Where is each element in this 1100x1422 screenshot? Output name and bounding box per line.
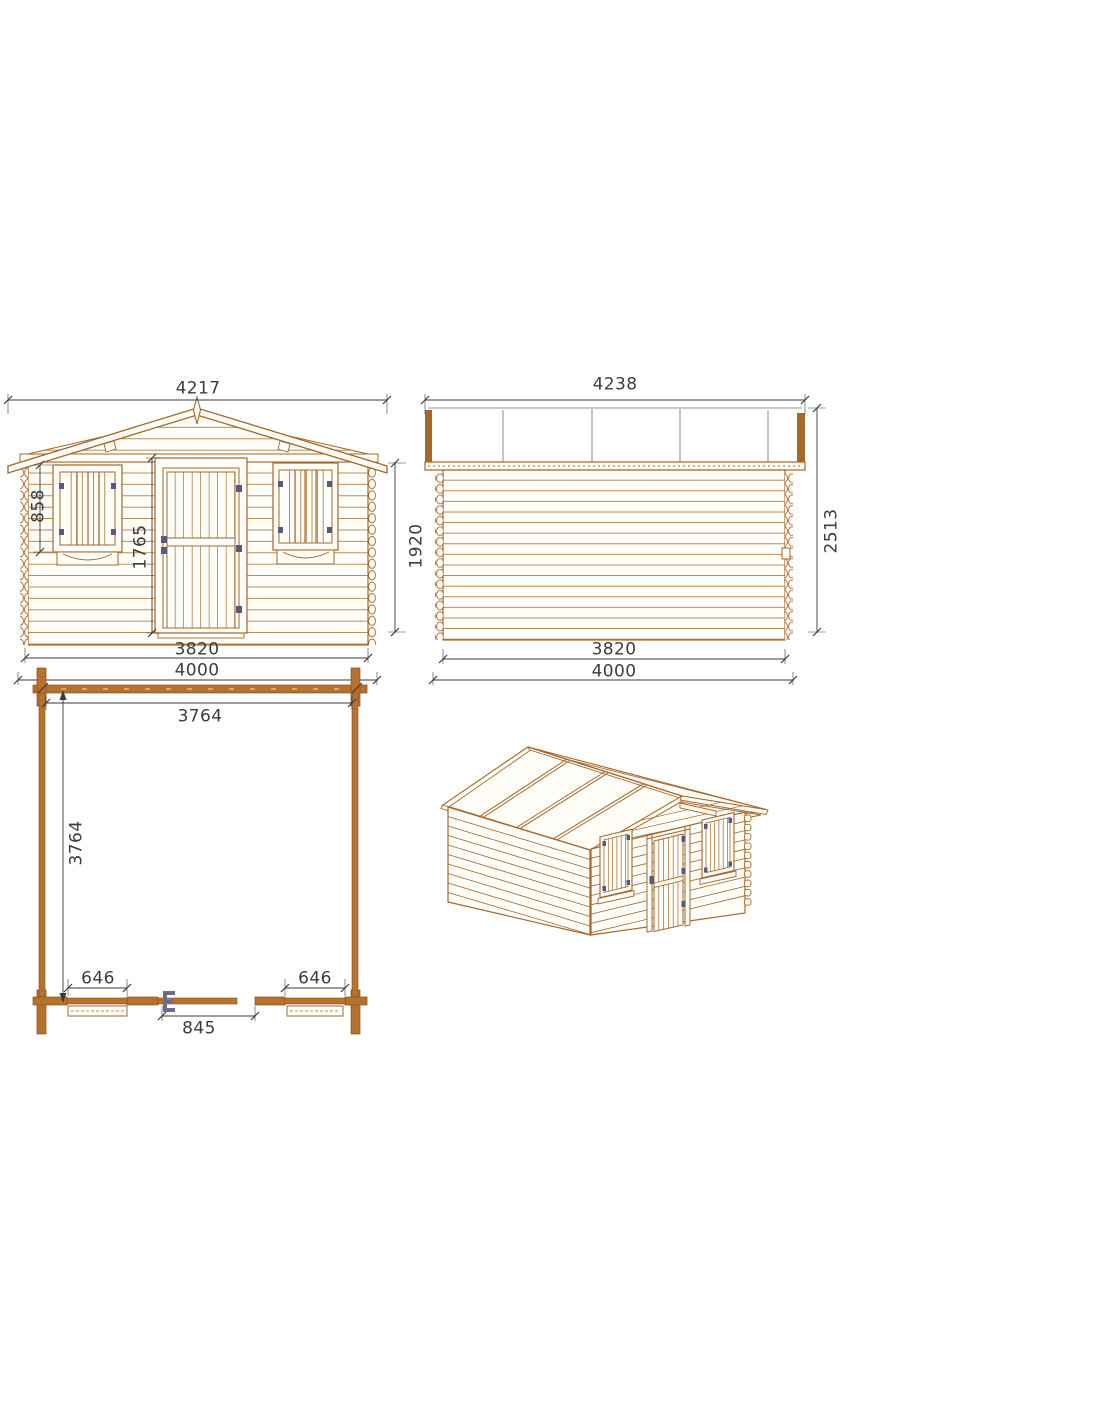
perspective-drawing xyxy=(430,740,790,960)
door-lock-icon xyxy=(161,547,167,554)
hinge-icon xyxy=(682,836,686,842)
log-ends-left xyxy=(20,467,28,645)
hinge-icon xyxy=(111,529,116,535)
dim-front-roof-width: 4217 xyxy=(176,381,221,398)
hinge-icon xyxy=(59,483,64,489)
dim-front-wall-width: 3820 xyxy=(175,642,220,659)
dim-plan-inner-width: 3764 xyxy=(178,709,223,726)
hinge-icon xyxy=(236,606,242,613)
dim-plan-window-right: 646 xyxy=(298,971,332,988)
dim-plan-window-left: 646 xyxy=(81,971,115,988)
side-roof xyxy=(425,408,805,470)
window-box xyxy=(277,550,334,564)
hinge-icon xyxy=(327,481,332,487)
hinge-icon xyxy=(236,545,242,552)
front-window-left xyxy=(53,465,122,565)
log-ends-left xyxy=(435,473,443,640)
hinge-icon xyxy=(627,835,631,840)
hinge-icon xyxy=(682,868,686,874)
hinge-icon xyxy=(236,485,242,492)
plan-wall-right xyxy=(352,693,358,997)
dim-plan-door-width: 845 xyxy=(182,1021,216,1038)
hinge-icon xyxy=(704,824,708,829)
barge-board-left xyxy=(425,410,432,467)
hinge-icon xyxy=(729,862,733,867)
hinge-icon xyxy=(603,841,607,846)
plan-window-right xyxy=(285,998,345,1004)
hinge-icon xyxy=(111,483,116,489)
persp-window-left xyxy=(598,829,634,904)
hinge-icon xyxy=(327,527,332,533)
dim-side-wall-height: 1920 xyxy=(409,524,426,569)
hinge-icon xyxy=(603,886,607,891)
door-handle-icon xyxy=(650,876,654,884)
dim-plan-inner-depth: 3764 xyxy=(69,821,86,866)
dim-front-window-height: 858 xyxy=(31,489,48,523)
hinge-icon xyxy=(704,868,708,873)
plan-wall-front xyxy=(345,997,367,1005)
corner-latch xyxy=(782,548,790,559)
hinge-icon xyxy=(682,901,686,907)
drawing-sheet: 4217 858 1765 3820 4000 4238 1920 2513 3… xyxy=(0,0,1100,1422)
plan-wall-front xyxy=(255,997,285,1005)
hinge-icon xyxy=(59,529,64,535)
plan-wall-front xyxy=(127,997,158,1005)
front-elevation-drawing xyxy=(0,370,400,685)
dim-front-overall-width: 4000 xyxy=(175,663,220,680)
log-ends-right xyxy=(368,467,376,645)
plan-window-left xyxy=(67,998,127,1004)
hinge-icon xyxy=(729,818,733,823)
front-door xyxy=(155,458,247,638)
hinge-icon xyxy=(278,527,283,533)
dim-side-overall-depth: 4000 xyxy=(592,664,637,681)
dim-front-door-height: 1765 xyxy=(133,525,150,570)
plan-wall-left xyxy=(39,693,45,997)
dim-side-wall-depth: 3820 xyxy=(592,642,637,659)
side-wall xyxy=(435,470,793,640)
front-window-right xyxy=(273,463,338,564)
door-handle-icon xyxy=(161,536,167,543)
barge-board-right xyxy=(797,413,805,467)
window-box xyxy=(57,552,118,565)
dim-side-total-height: 2513 xyxy=(824,509,841,554)
persp-window-right xyxy=(700,813,736,885)
hinge-icon xyxy=(278,481,283,487)
hinge-icon xyxy=(627,880,631,885)
dim-side-roof-width: 4238 xyxy=(593,377,638,394)
